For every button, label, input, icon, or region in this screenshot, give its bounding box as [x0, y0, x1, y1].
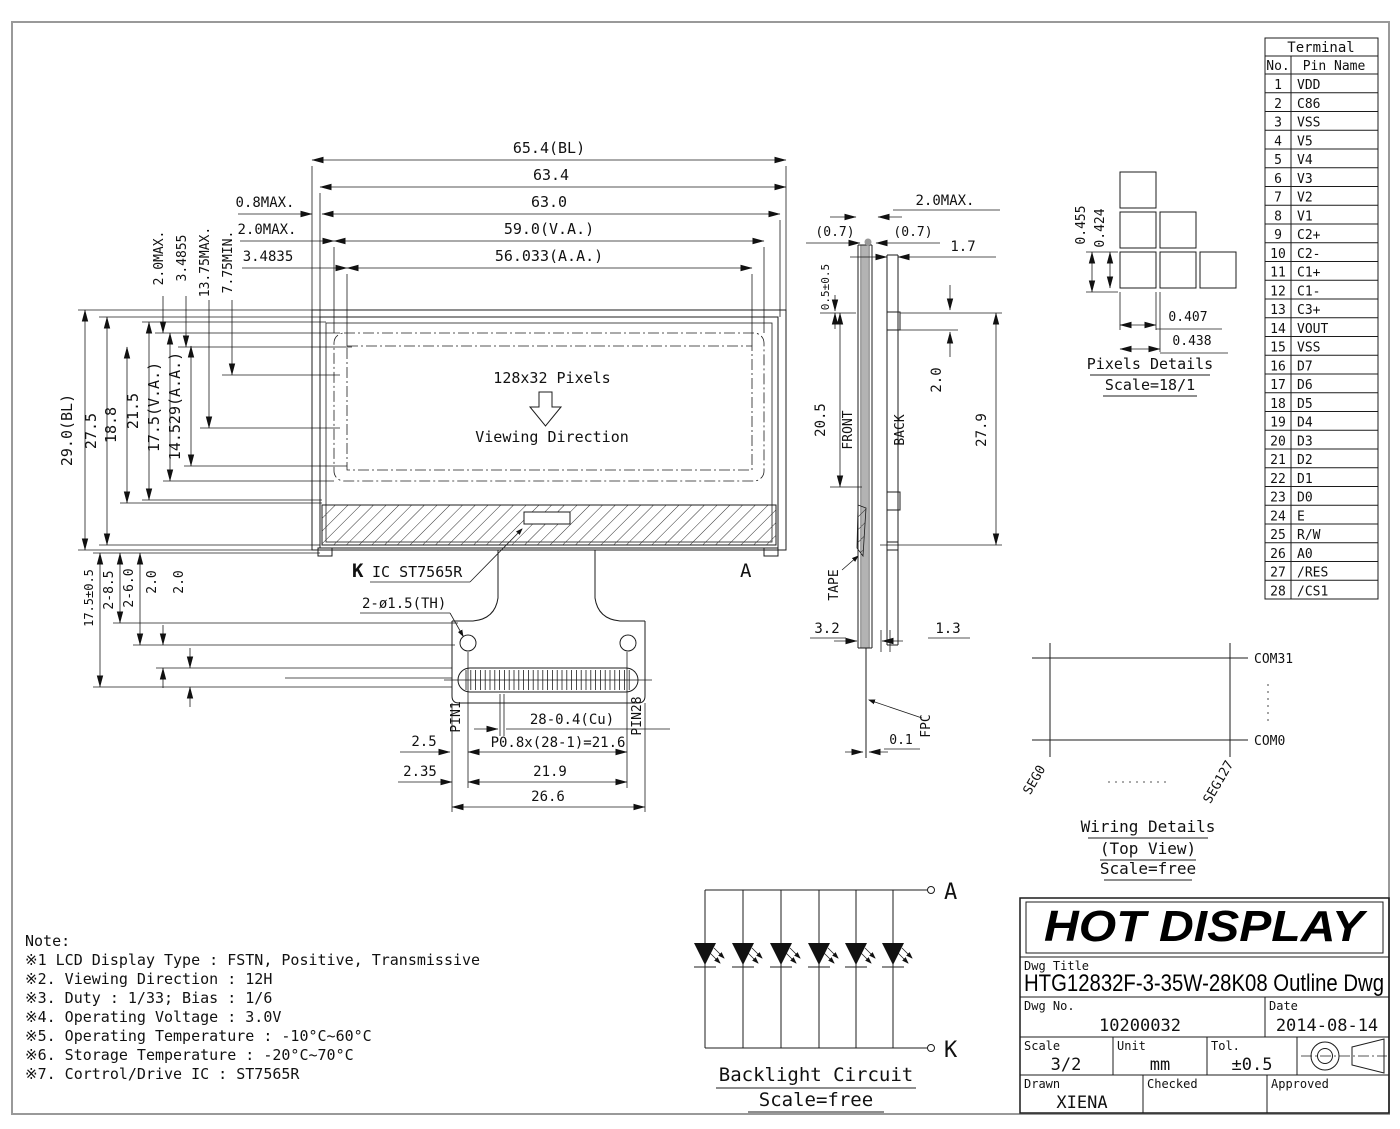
backlight-circuit: A K Backlight Circuit Scale=free: [694, 880, 958, 1112]
dim-3-2: 3.2: [814, 621, 839, 637]
terminal-row-no: 16: [1270, 359, 1286, 374]
terminal-row-pin: A0: [1297, 547, 1313, 562]
dim-2-35: 2.35: [403, 764, 437, 780]
pixels-details-title: Pixels Details: [1087, 355, 1213, 373]
terminal-row-no: 24: [1270, 509, 1286, 524]
ic-ledge-hatch: [322, 505, 776, 545]
backlight-anode-label: A: [944, 880, 957, 905]
pin1-label: PIN1: [449, 701, 464, 732]
front-label: FRONT: [841, 410, 856, 449]
dim-17-5-fold: 17.5±0.5: [82, 569, 96, 627]
dim-2-5: 2.5: [411, 734, 436, 750]
dim-2-0max-left: 2.0MAX.: [152, 231, 167, 286]
dim-65-4-bl: 65.4(BL): [513, 139, 585, 157]
dim-21-9: 21.9: [533, 764, 567, 780]
dim-21-5: 21.5: [124, 393, 142, 429]
title-block: HOT DISPLAY Dwg Title HTG12832F-3-35W-28…: [1020, 898, 1389, 1113]
terminal-row-pin: VSS: [1297, 116, 1320, 131]
terminal-row-pin: /CS1: [1297, 584, 1328, 599]
wiring-details-subtitle: (Top View): [1100, 839, 1196, 858]
terminal-row-pin: V4: [1297, 153, 1313, 168]
note-4: ※4. Operating Voltage : 3.0V: [25, 1008, 281, 1026]
terminal-row-no: 23: [1270, 491, 1286, 506]
terminal-table-title: Terminal: [1287, 40, 1354, 56]
front-view-top-dims: 65.4(BL) 63.4 63.0 59.0(V.A.) 56.033(A.A…: [235, 139, 786, 346]
notes: Note: ※1 LCD Display Type : FSTN, Positi…: [25, 932, 480, 1083]
terminal-row-no: 15: [1270, 341, 1286, 356]
dim-0-1: 0.1: [889, 733, 912, 748]
note-7: ※7. Cortrol/Drive IC : ST7565R: [25, 1065, 300, 1083]
terminal-row-pin: VSS: [1297, 341, 1320, 356]
terminal-row-no: 20: [1270, 434, 1286, 449]
lcd-outline-drawing-sheet: 128x32 Pixels Viewing Direction 65.4(BL)…: [0, 0, 1400, 1129]
dim-63-4: 63.4: [533, 166, 569, 184]
pixels-details: 0.455 0.424 0.407 0.438 Pixels Details S…: [1074, 172, 1236, 396]
tape-label: TAPE: [827, 569, 842, 600]
dim-17-5-va: 17.5(V.A.): [145, 362, 163, 452]
dim-2-0max-top: 2.0MAX.: [237, 222, 296, 238]
viewing-direction-label: Viewing Direction: [475, 428, 629, 446]
terminal-row-pin: V2: [1297, 191, 1313, 206]
note-2: ※2. Viewing Direction : 12H: [25, 970, 272, 988]
terminal-row-pin: E: [1297, 509, 1305, 524]
terminal-row-no: 1: [1274, 78, 1282, 93]
com31-label: COM31: [1254, 652, 1293, 667]
unit-label: Unit: [1117, 1039, 1146, 1053]
terminal-row-pin: D6: [1297, 378, 1313, 393]
dim-1-7: 1.7: [950, 239, 975, 255]
terminal-row-no: 14: [1270, 322, 1286, 337]
active-area-outline: [347, 346, 752, 470]
backlight-scale: Scale=free: [759, 1089, 873, 1111]
driver-ic: [524, 512, 570, 524]
fpc-connector: 2-ø1.5(TH) PIN1 PIN28 28-0.4(Cu) 2.5 P0.…: [360, 550, 670, 812]
terminal-row-no: 26: [1270, 547, 1286, 562]
drawn-value: XIENA: [1056, 1093, 1107, 1113]
terminal-row-pin: V3: [1297, 172, 1313, 187]
terminal-col-pin: Pin Name: [1303, 59, 1366, 74]
side-view: 2.0MAX. (0.7) (0.7) 1.7 0.5±0.5 20.5 FRO…: [806, 193, 1002, 758]
terminal-row-pin: C3+: [1297, 303, 1321, 318]
dim-63-0: 63.0: [531, 193, 567, 211]
cathode-terminal: [928, 1045, 935, 1052]
dwg-no-label: Dwg No.: [1024, 999, 1075, 1013]
terminal-row-no: 25: [1270, 528, 1286, 543]
anode-label: A: [740, 560, 752, 582]
dim-3-4835: 3.4835: [243, 249, 294, 265]
terminal-row-pin: VOUT: [1297, 322, 1328, 337]
terminal-row-no: 12: [1270, 284, 1286, 299]
terminal-rows: 1VDD2C863VSS4V55V46V37V28V19C2+10C2-11C1…: [1265, 78, 1378, 599]
terminal-row-no: 28: [1270, 584, 1286, 599]
dim-0-7-right: (0.7): [893, 225, 932, 240]
pixels-details-scale: Scale=18/1: [1105, 376, 1195, 394]
wiring-details-title: Wiring Details: [1081, 817, 1216, 836]
mounting-hole-left: [460, 635, 476, 651]
ic-label: IC ST7565R: [372, 563, 463, 581]
dim-side-2-0max: 2.0MAX.: [915, 193, 974, 209]
checked-label: Checked: [1147, 1077, 1198, 1091]
scale-label: Scale: [1024, 1039, 1060, 1053]
terminal-row-pin: R/W: [1297, 528, 1321, 543]
terminal-row-no: 4: [1274, 134, 1282, 149]
back-label: BACK: [893, 414, 908, 445]
note-1: ※1 LCD Display Type : FSTN, Positive, Tr…: [25, 951, 480, 969]
dim-0-7-left: (0.7): [815, 225, 854, 240]
terminal-row-no: 9: [1274, 228, 1282, 243]
hole-dim-label: 2-ø1.5(TH): [362, 596, 446, 612]
terminal-row-pin: D5: [1297, 397, 1313, 412]
company-logo: HOT DISPLAY: [1044, 902, 1368, 951]
foot-left: [318, 548, 332, 556]
note-5: ※5. Operating Temperature : -10°C~60°C: [25, 1027, 372, 1045]
terminal-row-pin: C1+: [1297, 266, 1321, 281]
dim-0-8max: 0.8MAX.: [235, 195, 294, 211]
tol-label: Tol.: [1211, 1039, 1240, 1053]
seg127-label: SEG127: [1201, 758, 1237, 806]
back-tab-small: [887, 542, 898, 550]
pin28-label: PIN28: [630, 696, 645, 735]
wiring-details: COM31 COM0 SEG0 SEG127 Wiring Details (T…: [1021, 643, 1293, 880]
front-view: 128x32 Pixels Viewing Direction 65.4(BL)…: [58, 139, 786, 812]
date-label: Date: [1269, 999, 1298, 1013]
terminal-row-no: 22: [1270, 472, 1286, 487]
terminal-row-no: 10: [1270, 247, 1286, 262]
dim-0-455: 0.455: [1074, 205, 1089, 244]
terminal-row-pin: V1: [1297, 209, 1313, 224]
terminal-row-no: 21: [1270, 453, 1286, 468]
com0-label: COM0: [1254, 734, 1285, 749]
terminal-row-no: 27: [1270, 566, 1286, 581]
dim-1-3: 1.3: [935, 621, 960, 637]
dim-29-0-bl: 29.0(BL): [58, 394, 76, 466]
foot-right: [764, 548, 778, 556]
dim-0-5: 0.5±0.5: [819, 264, 832, 310]
drawn-label: Drawn: [1024, 1077, 1060, 1091]
terminal-row-pin: VDD: [1297, 78, 1321, 93]
dim-2-0-a: 2.0: [145, 570, 160, 593]
terminal-row-no: 18: [1270, 397, 1286, 412]
dwg-no-value: 10200032: [1099, 1016, 1181, 1036]
wiring-details-scale: Scale=free: [1100, 859, 1196, 878]
dim-pitch: P0.8x(28-1)=21.6: [491, 735, 626, 751]
dim-2-8-5: 2-8.5: [102, 570, 117, 609]
display-resolution-label: 128x32 Pixels: [493, 369, 610, 387]
cathode-label: K: [352, 560, 364, 582]
bump-dot: [865, 239, 872, 246]
terminal-row-pin: C2+: [1297, 228, 1321, 243]
drawing-canvas: 128x32 Pixels Viewing Direction 65.4(BL)…: [0, 0, 1400, 1129]
dim-0-438: 0.438: [1172, 334, 1211, 349]
terminal-row-pin: C86: [1297, 97, 1320, 112]
dim-20-5: 20.5: [813, 403, 829, 437]
dim-18-8: 18.8: [102, 407, 120, 443]
terminal-row-pin: D3: [1297, 434, 1313, 449]
dim-27-5: 27.5: [82, 413, 100, 449]
terminal-row-pin: V5: [1297, 134, 1313, 149]
dim-3-4855: 3.4855: [175, 235, 190, 282]
terminal-row-no: 19: [1270, 416, 1286, 431]
terminal-row-no: 8: [1274, 209, 1282, 224]
dim-0-424: 0.424: [1093, 208, 1108, 247]
note-3: ※3. Duty : 1/33; Bias : 1/6: [25, 989, 272, 1007]
terminal-row-pin: C1-: [1297, 284, 1320, 299]
viewing-direction-arrow-icon: [530, 392, 561, 426]
tol-value: ±0.5: [1232, 1055, 1273, 1075]
dim-27-9: 27.9: [974, 413, 990, 447]
terminal-row-no: 13: [1270, 303, 1286, 318]
dim-7-75min: 7.75MIN.: [221, 231, 236, 294]
terminal-row-pin: D0: [1297, 491, 1313, 506]
backlight-title: Backlight Circuit: [719, 1064, 913, 1086]
notes-heading: Note:: [25, 932, 70, 950]
projection-symbol-icon: [1301, 1039, 1387, 1073]
terminal-row-no: 5: [1274, 153, 1282, 168]
dwg-title-value: HTG12832F-3-35W-28K08 Outline Dwg: [1024, 970, 1384, 997]
terminal-row-no: 3: [1274, 116, 1282, 131]
dim-tab-2-0: 2.0: [929, 367, 945, 392]
scale-value: 3/2: [1051, 1055, 1082, 1075]
terminal-row-no: 2: [1274, 97, 1282, 112]
terminal-row-no: 11: [1270, 266, 1286, 281]
terminal-col-no: No.: [1266, 59, 1289, 74]
viewing-area-outline: [334, 333, 764, 481]
terminal-row-no: 17: [1270, 378, 1286, 393]
dim-2-6-0: 2-6.0: [122, 568, 137, 607]
approved-label: Approved: [1271, 1077, 1329, 1091]
mounting-hole-right: [620, 635, 636, 651]
terminal-row-no: 7: [1274, 191, 1282, 206]
front-view-left-dims: 29.0(BL) 27.5 18.8 21.5 17.5(V.A.) 14.52…: [58, 310, 347, 550]
glass-fill: [862, 245, 868, 648]
note-6: ※6. Storage Temperature : -20°C~70°C: [25, 1046, 354, 1064]
dim-28-0-4-cu: 28-0.4(Cu): [530, 712, 614, 728]
dim-2-0-b: 2.0: [172, 570, 187, 593]
terminal-row-no: 6: [1274, 172, 1282, 187]
unit-value: mm: [1150, 1055, 1170, 1075]
terminal-row-pin: D7: [1297, 359, 1313, 374]
dim-56-033-aa: 56.033(A.A.): [495, 247, 603, 265]
dim-26-6: 26.6: [531, 789, 565, 805]
date-value: 2014-08-14: [1276, 1016, 1378, 1036]
terminal-row-pin: C2-: [1297, 247, 1320, 262]
dim-0-407: 0.407: [1168, 310, 1207, 325]
terminal-row-pin: /RES: [1297, 566, 1328, 581]
terminal-row-pin: D1: [1297, 472, 1313, 487]
terminal-row-pin: D2: [1297, 453, 1313, 468]
anode-terminal: [928, 887, 935, 894]
seg0-label: SEG0: [1021, 763, 1050, 798]
terminal-row-pin: D4: [1297, 416, 1313, 431]
backlight-cathode-label: K: [944, 1038, 958, 1063]
dim-13-75max: 13.75MAX.: [198, 227, 213, 297]
dim-59-0-va: 59.0(V.A.): [504, 220, 594, 238]
dim-14-529-aa: 14.529(A.A.): [166, 352, 184, 460]
terminal-table: Terminal No. Pin Name 1VDD2C863VSS4V55V4…: [1265, 38, 1378, 599]
